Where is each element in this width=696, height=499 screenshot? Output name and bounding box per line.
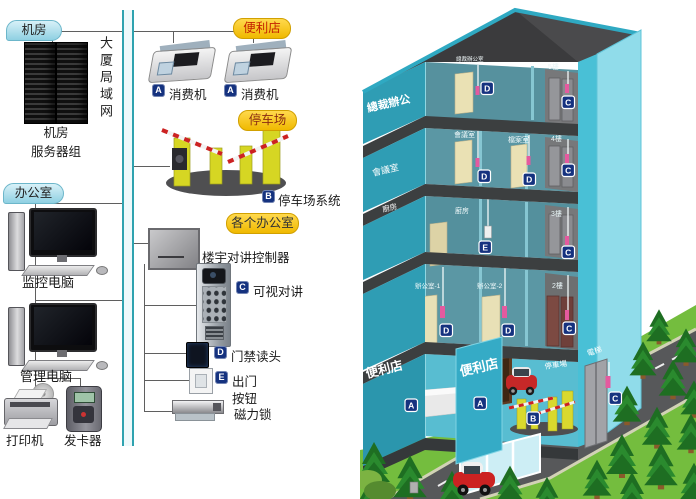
partition <box>531 66 534 120</box>
monitor-computer <box>8 208 106 282</box>
partition <box>525 270 528 346</box>
tag-a: A <box>152 84 165 97</box>
badge-e-f3: E <box>479 241 492 254</box>
pos-screen <box>249 52 276 67</box>
manage-pc-label: 管理电脑 <box>20 366 72 385</box>
svg-text:C: C <box>566 324 572 334</box>
svg-text:D: D <box>526 175 532 185</box>
pc-mouse <box>96 266 108 275</box>
magnetic-lock-label: 磁力锁 <box>234 404 272 423</box>
badge-c-f1: C <box>609 392 622 405</box>
lan-trunk-line <box>122 10 134 446</box>
svg-text:D: D <box>481 172 487 182</box>
svg-text:D: D <box>505 326 511 336</box>
magnetic-lock <box>172 400 224 414</box>
lock-plate <box>175 413 215 421</box>
printer-tray <box>3 418 53 429</box>
server-rack <box>24 42 56 124</box>
pos-machine <box>148 38 220 84</box>
outdoor-elevator <box>585 359 611 448</box>
door-f5 <box>455 72 473 114</box>
pc-stand <box>57 255 67 262</box>
pc-stand <box>57 350 67 357</box>
parking-badge: 停车场 <box>238 110 297 131</box>
wire <box>52 31 253 32</box>
badge-c-f3: C <box>562 246 575 259</box>
badge-a-f1-1: A <box>405 399 418 412</box>
svg-text:A: A <box>477 399 483 409</box>
server-caption-line1: 机房 <box>10 122 102 141</box>
badge-b-f1: B <box>527 412 540 425</box>
diagram-page: 大厦局域网 机房 机房 服务器组 便利店 A 消费机 A 消费机 停车场 <box>0 0 696 499</box>
partition <box>479 266 482 342</box>
badge-d-f2-1: D <box>440 324 453 337</box>
server-caption: 机房 服务器组 <box>10 122 102 160</box>
pos-screen <box>173 52 200 67</box>
each-office-badge: 各个办公室 <box>226 213 299 234</box>
intercom-controller <box>148 228 200 270</box>
server-rack <box>56 42 88 124</box>
office-badge: 办公室 <box>3 183 64 204</box>
pos-label: 消费机 <box>169 84 207 103</box>
intercom-label: 可视对讲 <box>253 281 303 300</box>
card-issuer <box>66 386 102 432</box>
tag-a: A <box>224 84 237 97</box>
svg-text:A: A <box>408 401 414 411</box>
lan-label: 大厦局域网 <box>96 36 115 121</box>
server-caption-line2: 服务器组 <box>10 141 102 160</box>
barrier-arm <box>162 130 222 154</box>
wire <box>144 411 172 412</box>
badge-d-f4-2: D <box>523 173 536 186</box>
svg-text:E: E <box>482 243 488 253</box>
printer <box>4 392 60 432</box>
floor4-label: 4樓 <box>551 134 562 143</box>
floor4-room1-label: 會議室 <box>454 130 475 139</box>
tag-e: E <box>215 371 228 384</box>
pc-tower <box>8 307 25 366</box>
printer-slot <box>10 402 50 407</box>
tag-b: B <box>262 190 275 203</box>
pos-keypad <box>157 61 175 75</box>
building-illustration: 總裁辦公 總裁辦公室 5樓 會議室 會議室 檔案室 4樓 廚房 廚房 3樓 辦公… <box>360 0 696 499</box>
exit-button <box>189 368 213 394</box>
svg-text:C: C <box>565 248 571 258</box>
trash-can <box>410 482 418 493</box>
svg-text:D: D <box>443 326 449 336</box>
pc-mouse <box>96 361 108 370</box>
pos-keypad <box>233 61 251 75</box>
issuer-screen <box>74 392 95 403</box>
wire <box>144 353 186 354</box>
store-badge: 便利店 <box>233 18 291 39</box>
door-reader-label: 门禁读头 <box>231 346 281 365</box>
barrier-reader-dial <box>176 155 184 163</box>
intercom-speaker <box>205 326 224 340</box>
intercom-keypad <box>202 286 227 323</box>
pos-label: 消费机 <box>241 84 279 103</box>
card-issuer-label: 发卡器 <box>64 430 102 449</box>
tag-d: D <box>214 346 227 359</box>
badge-c-f2: C <box>563 322 576 335</box>
floor2-room2-label: 辦公室-2 <box>477 281 503 290</box>
pos-machine <box>224 38 296 84</box>
svg-text:C: C <box>612 394 618 404</box>
wire <box>144 305 196 306</box>
wire <box>144 380 189 381</box>
floor2-room1-label: 辦公室-1 <box>415 281 441 290</box>
exit-button-face <box>195 374 207 388</box>
pc-screen <box>34 212 92 250</box>
svg-text:D: D <box>484 84 490 94</box>
intercom-lens <box>210 272 216 278</box>
printer-label: 打印机 <box>6 430 44 449</box>
wire <box>144 264 145 412</box>
floor3-room-label: 廚房 <box>455 206 469 215</box>
door-f4-meeting <box>455 140 472 184</box>
video-intercom-panel <box>196 263 231 347</box>
wire <box>35 300 123 301</box>
floor3-label: 3樓 <box>551 209 562 218</box>
barrier-post <box>263 128 280 184</box>
floor5-label: 5樓 <box>548 62 559 71</box>
svg-text:C: C <box>565 166 571 176</box>
parking-system-label: 停车场系统 <box>278 190 341 209</box>
badge-c-f5: C <box>562 96 575 109</box>
pc-screen <box>34 307 92 345</box>
badge-d-f5: D <box>481 82 494 95</box>
floor5-room-label: 總裁辦公室 <box>456 55 484 63</box>
pc-tower <box>8 212 25 271</box>
server-room-badge: 机房 <box>6 20 62 41</box>
badge-d-f4-1: D <box>478 170 491 183</box>
floor4-room2-label: 檔案室 <box>508 135 529 144</box>
svg-text:C: C <box>565 98 571 108</box>
door-reader <box>186 342 209 368</box>
floor2-label: 2樓 <box>552 281 563 290</box>
controller-text-line <box>158 256 184 258</box>
tag-c: C <box>236 281 249 294</box>
issuer-dot <box>81 412 86 417</box>
lock-end <box>213 403 221 411</box>
badge-d-f2-2: D <box>502 324 515 337</box>
controller-label: 楼宇对讲控制器 <box>202 247 290 266</box>
partition <box>525 202 528 258</box>
badge-c-f4: C <box>562 164 575 177</box>
badge-a-f1-2: A <box>474 397 487 410</box>
parking-barrier-graphic <box>160 120 292 200</box>
svg-text:B: B <box>530 414 536 424</box>
monitor-pc-label: 监控电脑 <box>22 272 74 291</box>
